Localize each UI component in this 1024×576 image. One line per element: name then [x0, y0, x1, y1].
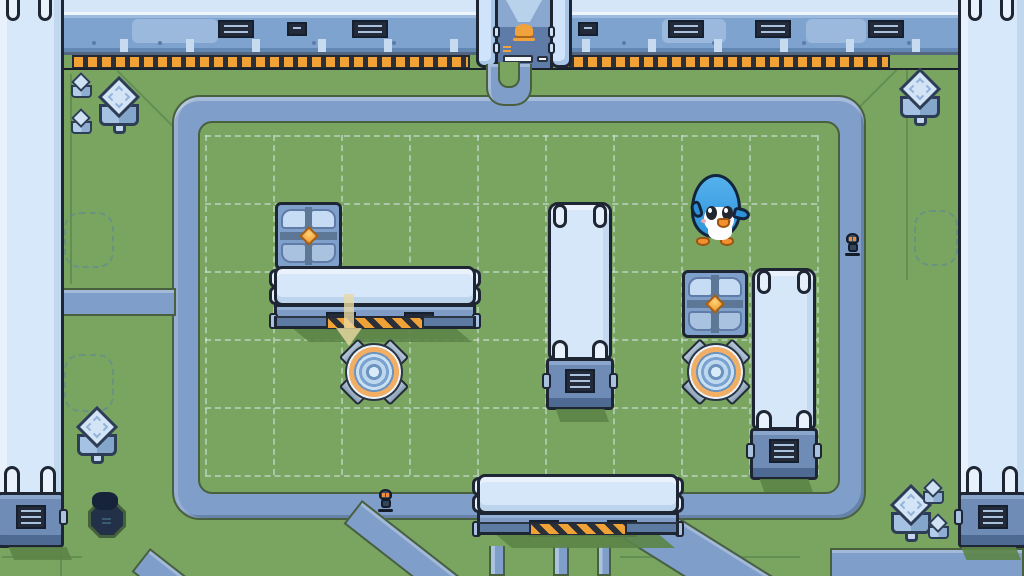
crate-corner-pad — [281, 209, 307, 229]
base-grill — [565, 369, 595, 393]
game-viewport[interactable] — [0, 0, 1024, 576]
shadow — [481, 535, 675, 548]
crate-lid — [274, 266, 476, 306]
cube-foot — [914, 115, 927, 126]
entity-layer — [0, 0, 1024, 576]
cube-small-topleft-1 — [70, 72, 94, 102]
critter-body — [381, 499, 391, 508]
shadow — [755, 479, 813, 492]
critter-shadow — [845, 253, 860, 256]
crate-long-horizontal[interactable] — [272, 266, 478, 342]
critter-body — [848, 243, 858, 252]
crate-long-vertical-middle[interactable] — [546, 202, 614, 410]
crate-hook — [757, 270, 771, 294]
base-nub — [609, 373, 618, 389]
shadow — [551, 409, 609, 422]
cube-big-midleft — [74, 410, 120, 470]
critter-eye — [849, 237, 852, 241]
critter-eye — [382, 493, 385, 497]
arrow-shaft — [344, 294, 354, 328]
cube-small-bottomright-2 — [927, 513, 949, 541]
base-nub — [542, 373, 551, 389]
critter-eye — [386, 493, 389, 497]
hole-detail — [102, 518, 111, 520]
crate-lid — [477, 474, 679, 514]
base-grill — [769, 439, 799, 463]
cube-foot — [91, 453, 104, 464]
critter-right-path — [843, 230, 863, 260]
crate-square-left[interactable] — [275, 202, 342, 270]
penguin-player[interactable] — [688, 168, 746, 246]
critter-eye — [853, 237, 856, 241]
cube-small-topleft-2 — [70, 108, 94, 138]
cube-big-topleft — [96, 80, 142, 138]
crate-hazard-stripe — [529, 522, 627, 536]
crate-corner-pad — [310, 209, 336, 229]
base-nub — [746, 443, 755, 459]
critter-bottom-path — [376, 486, 396, 514]
target-disc — [345, 343, 403, 401]
crate-square-right[interactable] — [682, 270, 748, 338]
cube-big-topright — [897, 72, 945, 132]
cube-small-bottomright-1 — [922, 478, 946, 508]
crate-base — [750, 428, 818, 480]
critter-shadow — [378, 509, 393, 512]
target-pad-right[interactable] — [682, 338, 750, 406]
crate-hook — [797, 270, 811, 294]
penguin-cheek — [701, 219, 706, 223]
target-disc — [687, 343, 745, 401]
crate-long-vertical-right[interactable] — [750, 268, 818, 480]
hole-detail — [102, 522, 111, 524]
cube-foot — [905, 531, 918, 542]
crate-base — [546, 358, 614, 410]
crate-long-horizontal-bottom[interactable] — [475, 474, 681, 548]
target-pad-left[interactable] — [340, 338, 408, 406]
hole — [88, 492, 128, 544]
crate-corner-pad — [717, 277, 742, 297]
crate-corner-pad — [310, 243, 336, 263]
crate-corner-pad — [717, 311, 742, 331]
hole-overhang-shadow — [92, 492, 118, 510]
crate-hook — [593, 204, 607, 228]
eye-glint — [724, 208, 728, 213]
crate-corner-pad — [281, 243, 307, 263]
crate-corner-pad — [688, 277, 713, 297]
base-nub — [813, 443, 822, 459]
eye-glint — [708, 208, 712, 213]
cube-foot — [113, 123, 126, 134]
crate-corner-pad — [688, 311, 713, 331]
penguin-foot — [696, 237, 710, 246]
crate-hook — [553, 204, 567, 228]
penguin-eye — [706, 206, 717, 220]
penguin-beak — [717, 218, 730, 228]
